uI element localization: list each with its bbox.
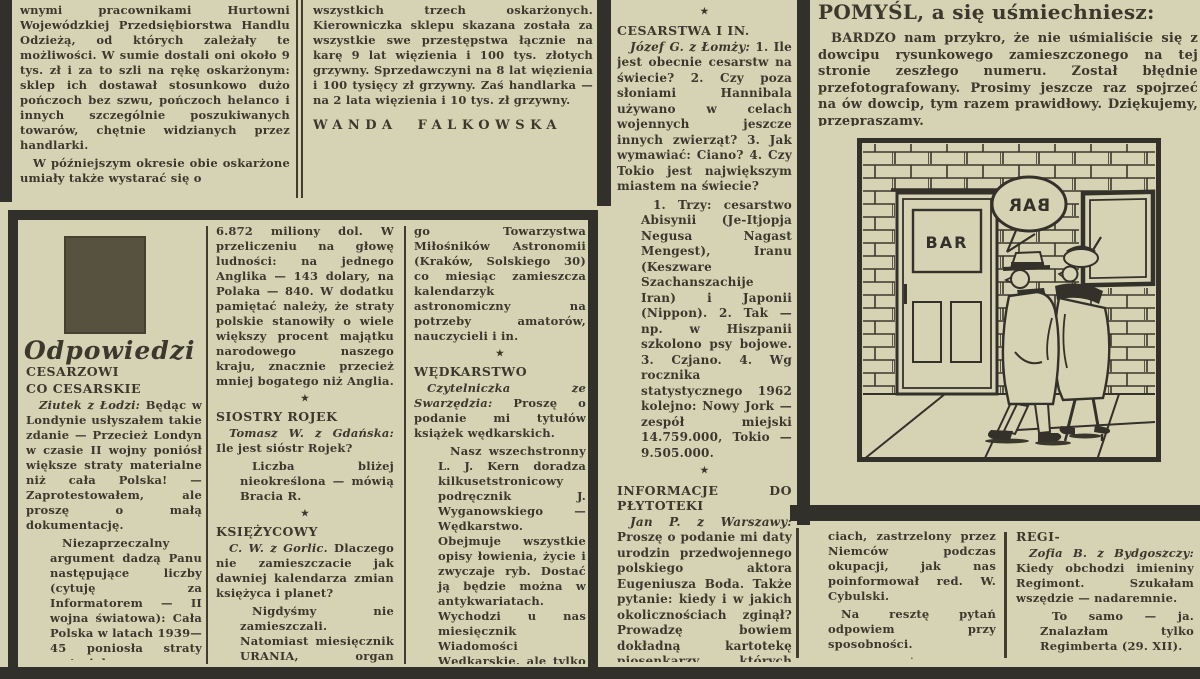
question-text: Ile jest sióstr Rojek?: [216, 441, 353, 455]
answer-paragraph: Liczba bliżej nieokreślona — mówią Braci…: [216, 459, 394, 504]
shop-window: [1083, 192, 1153, 285]
article-column-rule-1: [296, 0, 298, 198]
question-text: Będąc w Londynie usłyszałem takie zdanie…: [26, 398, 202, 532]
door-handle: [904, 284, 907, 304]
reader-name: Jan P. z Warszawy:: [630, 515, 792, 529]
answers-col2: 6.872 miliony dol. W przeliczeniu na gło…: [216, 224, 394, 664]
section-heading: REGI-: [1016, 530, 1194, 544]
portrait-photo: [64, 236, 146, 334]
star-separator: ★: [216, 507, 394, 522]
section-heading: CO CESARSKIE: [26, 382, 202, 396]
reader-name: Zofia B. z Bydgoszczy:: [1029, 546, 1194, 560]
section-heading: CESARSTWA I IN.: [617, 24, 792, 38]
answer-paragraph: Nasz wszechstronny L. J. Kern doradza ki…: [414, 444, 586, 664]
question-paragraph: C. W. z Gorlic. Dlaczego nie zamieszczac…: [216, 541, 394, 601]
bottom-column-rule: [1004, 532, 1007, 658]
answers-script-title: Odpowiedzi: [24, 336, 186, 365]
section-heading: KSIĘŻYCOWY: [216, 525, 394, 539]
section-heading: WĘDKARSTWO: [414, 365, 586, 379]
reader-name: Józef G. z Łomży:: [630, 40, 750, 54]
answer-paragraph: ciach, zastrzelony przez Niemców podczas…: [828, 529, 996, 604]
humor-section-heading: POMYŚL, a się uśmiechniesz:: [818, 0, 1200, 24]
answers-column-rule: [404, 226, 406, 664]
bottom-col1: ciach, zastrzelony przez Niemców podczas…: [828, 529, 996, 659]
bar-cartoon-drawing: BAR BAR: [857, 138, 1161, 462]
article-paragraph: wnymi pracownikami Hurtowni Wojewódzkiej…: [20, 3, 290, 153]
answer-paragraph: Nigdyśmy nie zamieszczali. Natomiast mie…: [216, 604, 394, 664]
article-col2: wszystkich trzech oskarżonych. Kierownic…: [313, 3, 593, 199]
reader-name: Tomasz W. z Gdańska:: [229, 426, 394, 440]
reader-name: C. W. z Gorlic.: [229, 541, 328, 555]
bottom-col2: REGI- Zofia B. z Bydgoszczy: Kiedy obcho…: [1016, 527, 1194, 659]
article-column-rule-2: [301, 0, 303, 198]
question-paragraph: Ziutek z Łodzi: Będąc w Londynie usłysza…: [26, 398, 202, 533]
star-separator: ★: [216, 392, 394, 407]
bottom-left-rule: [796, 528, 799, 658]
question-paragraph: Józef G. z Łomży: 1. Ile jest obecnie ce…: [617, 40, 792, 195]
question-paragraph: Jan P. z Warszawy: Proszę o podanie mi d…: [617, 515, 792, 663]
bar-door: BAR: [891, 190, 1005, 394]
bottom-box-top-bar: [790, 505, 1200, 521]
star-separator: ★: [617, 464, 792, 480]
brick-wall-left: [863, 194, 895, 394]
answers-column-rule: [206, 226, 208, 664]
answer-paragraph: go Towarzystwa Miłośników Astronomii (Kr…: [414, 224, 586, 344]
article-right-bar: [597, 0, 611, 206]
cartoon-panel: BAR BAR: [857, 138, 1161, 462]
left-edge-bar: [0, 0, 12, 202]
article-paragraph: wszystkich trzech oskarżonych. Kierownic…: [313, 3, 593, 108]
article-byline: WANDA FALKOWSKA: [313, 118, 593, 133]
answer-paragraph: Na resztę pytań odpowiem przy sposobnośc…: [828, 607, 996, 652]
newspaper-page: wnymi pracownikami Hurtowni Wojewódzkiej…: [0, 0, 1200, 679]
question-text: Kiedy obchodzi imieniny Regimont. Szukał…: [1016, 561, 1194, 605]
section-heading: INFORMACJE DO PŁYTOTEKI: [617, 483, 792, 513]
answers-col3: go Towarzystwa Miłośników Astronomii (Kr…: [414, 224, 586, 664]
answers-box: Odpowiedzi CESARZOWI CO CESARSKIE Ziutek…: [8, 210, 598, 679]
section-heading: SIOSTRY ROJEK: [216, 410, 394, 424]
star-separator: ★: [414, 347, 586, 362]
middle-right-bar: [797, 0, 810, 525]
article-paragraph: W późniejszym okresie obie oskarżone umi…: [20, 156, 290, 186]
answers-col1: CESARZOWI CO CESARSKIE Ziutek z Łodzi: B…: [26, 362, 202, 660]
answer-paragraph: Niezaprzeczalny argument dadzą Panu nast…: [26, 536, 202, 660]
question-text: Proszę o podanie mi daty urodzin przedwo…: [617, 530, 792, 662]
middle-column: ★ CESARSTWA I IN. Józef G. z Łomży: 1. I…: [617, 2, 792, 662]
section-heading: CESARZOWI: [26, 365, 202, 379]
answer-paragraph: 1. Trzy: cesarstwo Abisynii (Je-Itjopja …: [617, 198, 792, 462]
humor-section-body: BARDZO nam przykro, że nie uśmialiście s…: [818, 31, 1198, 126]
bubble-mirrored-text: BAR: [1008, 196, 1050, 216]
question-paragraph: Zofia B. z Bydgoszczy: Kiedy obchodzi im…: [1016, 546, 1194, 606]
question-paragraph: Tomasz W. z Gdańska: Ile jest sióstr Roj…: [216, 426, 394, 456]
question-paragraph: Czytelniczka ze Swarzędzia: Proszę o pod…: [414, 381, 586, 441]
answer-paragraph: 6.872 miliony dol. W przeliczeniu na gło…: [216, 224, 394, 389]
star-separator: ★: [617, 5, 792, 21]
humor-paragraph: BARDZO nam przykro, że nie uśmialiście s…: [818, 31, 1198, 126]
question-text: 1. Ile jest obecnie cesarstw na świecie?…: [617, 40, 792, 194]
answer-paragraph: To samo — ja. Znalazłam tylko Regimberta…: [1016, 609, 1194, 654]
article-col1: wnymi pracownikami Hurtowni Wojewódzkiej…: [20, 3, 290, 199]
door-sign-text: BAR: [926, 233, 969, 252]
star-separator: ★: [828, 655, 996, 659]
reader-name: Ziutek z Łodzi:: [39, 398, 140, 412]
